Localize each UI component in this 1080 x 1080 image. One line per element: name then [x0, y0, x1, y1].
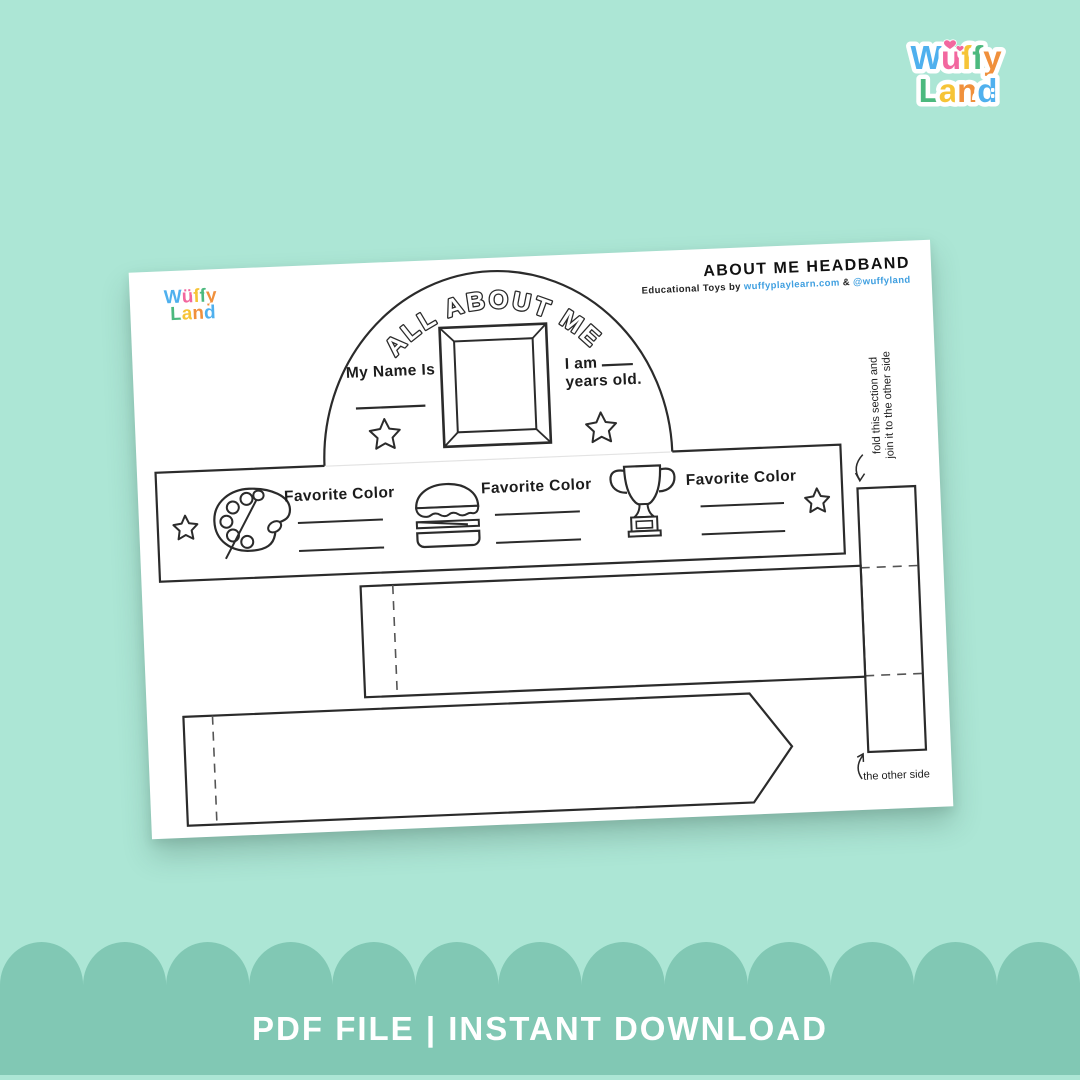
svg-text:years old.: years old.	[565, 371, 642, 391]
svg-text:Favorite Color: Favorite Color	[685, 467, 796, 489]
svg-text:My Name Is: My Name Is	[345, 361, 435, 382]
svg-text:the other side: the other side	[862, 768, 929, 783]
svg-text:Wuffy: Wuffy	[910, 39, 1002, 76]
svg-text:I am: I am	[564, 355, 597, 373]
svg-text:Favorite Color: Favorite Color	[283, 484, 394, 506]
svg-text:Land: Land	[169, 302, 215, 325]
svg-text:Educational Toys by wuffyplayl: Educational Toys by wuffyplaylearn.com &…	[641, 275, 910, 297]
svg-text:Favorite Color: Favorite Color	[480, 476, 591, 498]
svg-text:Land: Land	[919, 72, 998, 109]
